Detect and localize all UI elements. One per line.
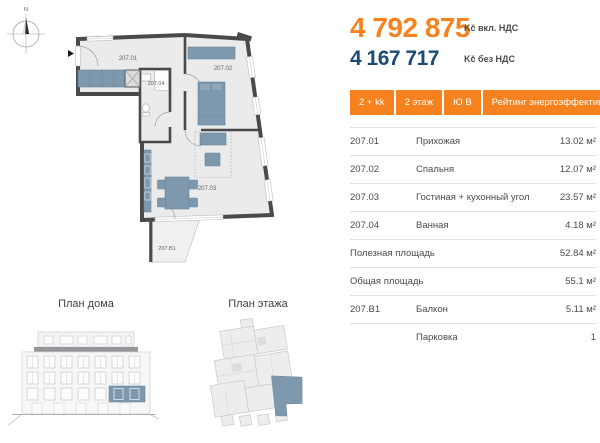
room-label-bedroom: 207.02 bbox=[214, 66, 233, 72]
floor-plan-thumbnail bbox=[193, 314, 323, 436]
house-plan-title: План дома bbox=[24, 298, 148, 310]
price-without-vat: 4 167 717 bbox=[350, 47, 464, 71]
compass-icon: N bbox=[6, 2, 46, 64]
table-row: 207.03 Гостиная + кухонный угол 23.57 м² bbox=[350, 183, 596, 211]
table-row: 207.04 Ванная 4.18 м² bbox=[350, 211, 596, 239]
room-name: Спальня bbox=[416, 164, 560, 175]
listing-page: N bbox=[0, 0, 600, 443]
room-name: Парковка bbox=[416, 332, 591, 343]
unit-info-panel: 4 792 875 Kč вкл. НДС 4 167 717 Kč без Н… bbox=[350, 12, 596, 351]
room-area: 1 bbox=[591, 332, 596, 343]
room-code: 207.02 bbox=[350, 164, 416, 175]
table-row-summary: Общая площадь 55.1 м² bbox=[350, 267, 596, 295]
entry-arrow-icon bbox=[68, 50, 74, 57]
floor-plan-title: План этажа bbox=[198, 298, 318, 310]
badge-row: 2 + kk 2 этаж Ю В Рейтинг энергоэффектив… bbox=[350, 90, 596, 115]
price-with-vat-label: Kč вкл. НДС bbox=[464, 23, 518, 33]
badge-energy-rating[interactable]: Рейтинг энергоэффективности : В bbox=[483, 90, 600, 115]
house-elevation-thumbnail bbox=[8, 318, 160, 433]
room-area: 4.18 м² bbox=[565, 220, 596, 231]
room-label-living: 207.03 bbox=[198, 186, 217, 192]
room-area: 23.57 м² bbox=[560, 192, 596, 203]
highlighted-unit-floorplan bbox=[269, 371, 307, 417]
room-code: 207.01 bbox=[350, 136, 416, 147]
table-row: 207.B1 Балкон 5.11 м² bbox=[350, 295, 596, 323]
room-area: 5.11 м² bbox=[566, 304, 596, 315]
room-code: 207.04 bbox=[350, 220, 416, 231]
badge-disposition[interactable]: 2 + kk bbox=[350, 90, 394, 115]
room-label-bathroom: 207.04 bbox=[148, 81, 165, 87]
badge-floor[interactable]: 2 этаж bbox=[396, 90, 442, 115]
room-code: 207.B1 bbox=[350, 304, 416, 315]
balcony-area bbox=[150, 218, 200, 262]
apartment-floor-plan: 207.01 207.02 207.04 207.03 207.B1 bbox=[55, 22, 290, 317]
price-without-vat-row: 4 167 717 Kč без НДС bbox=[350, 46, 596, 72]
badge-orientation[interactable]: Ю В bbox=[444, 90, 481, 115]
room-label-hallway: 207.01 bbox=[119, 56, 138, 62]
room-code: 207.03 bbox=[350, 192, 416, 203]
room-area: 12.07 м² bbox=[560, 164, 596, 175]
summary-label: Полезная площадь bbox=[350, 248, 560, 259]
summary-area: 55.1 м² bbox=[565, 276, 596, 287]
price-with-vat-row: 4 792 875 Kč вкл. НДС bbox=[350, 12, 596, 44]
price-without-vat-label: Kč без НДС bbox=[464, 54, 515, 64]
room-name: Балкон bbox=[416, 304, 566, 315]
table-row: 207.02 Спальня 12.07 м² bbox=[350, 155, 596, 183]
price-with-vat: 4 792 875 bbox=[350, 12, 464, 44]
table-row: Парковка 1 bbox=[350, 323, 596, 351]
compass-north-label: N bbox=[24, 7, 28, 13]
details-table: 207.01 Прихожая 13.02 м² 207.02 Спальня … bbox=[350, 127, 596, 351]
room-name: Ванная bbox=[416, 220, 565, 231]
summary-label: Общая площадь bbox=[350, 276, 565, 287]
room-name: Прихожая bbox=[416, 136, 560, 147]
room-name: Гостиная + кухонный угол bbox=[416, 192, 560, 203]
room-label-balcony: 207.B1 bbox=[158, 246, 175, 252]
summary-area: 52.84 м² bbox=[560, 248, 596, 259]
room-area: 13.02 м² bbox=[560, 136, 596, 147]
table-row: 207.01 Прихожая 13.02 м² bbox=[350, 127, 596, 155]
table-row-summary: Полезная площадь 52.84 м² bbox=[350, 239, 596, 267]
